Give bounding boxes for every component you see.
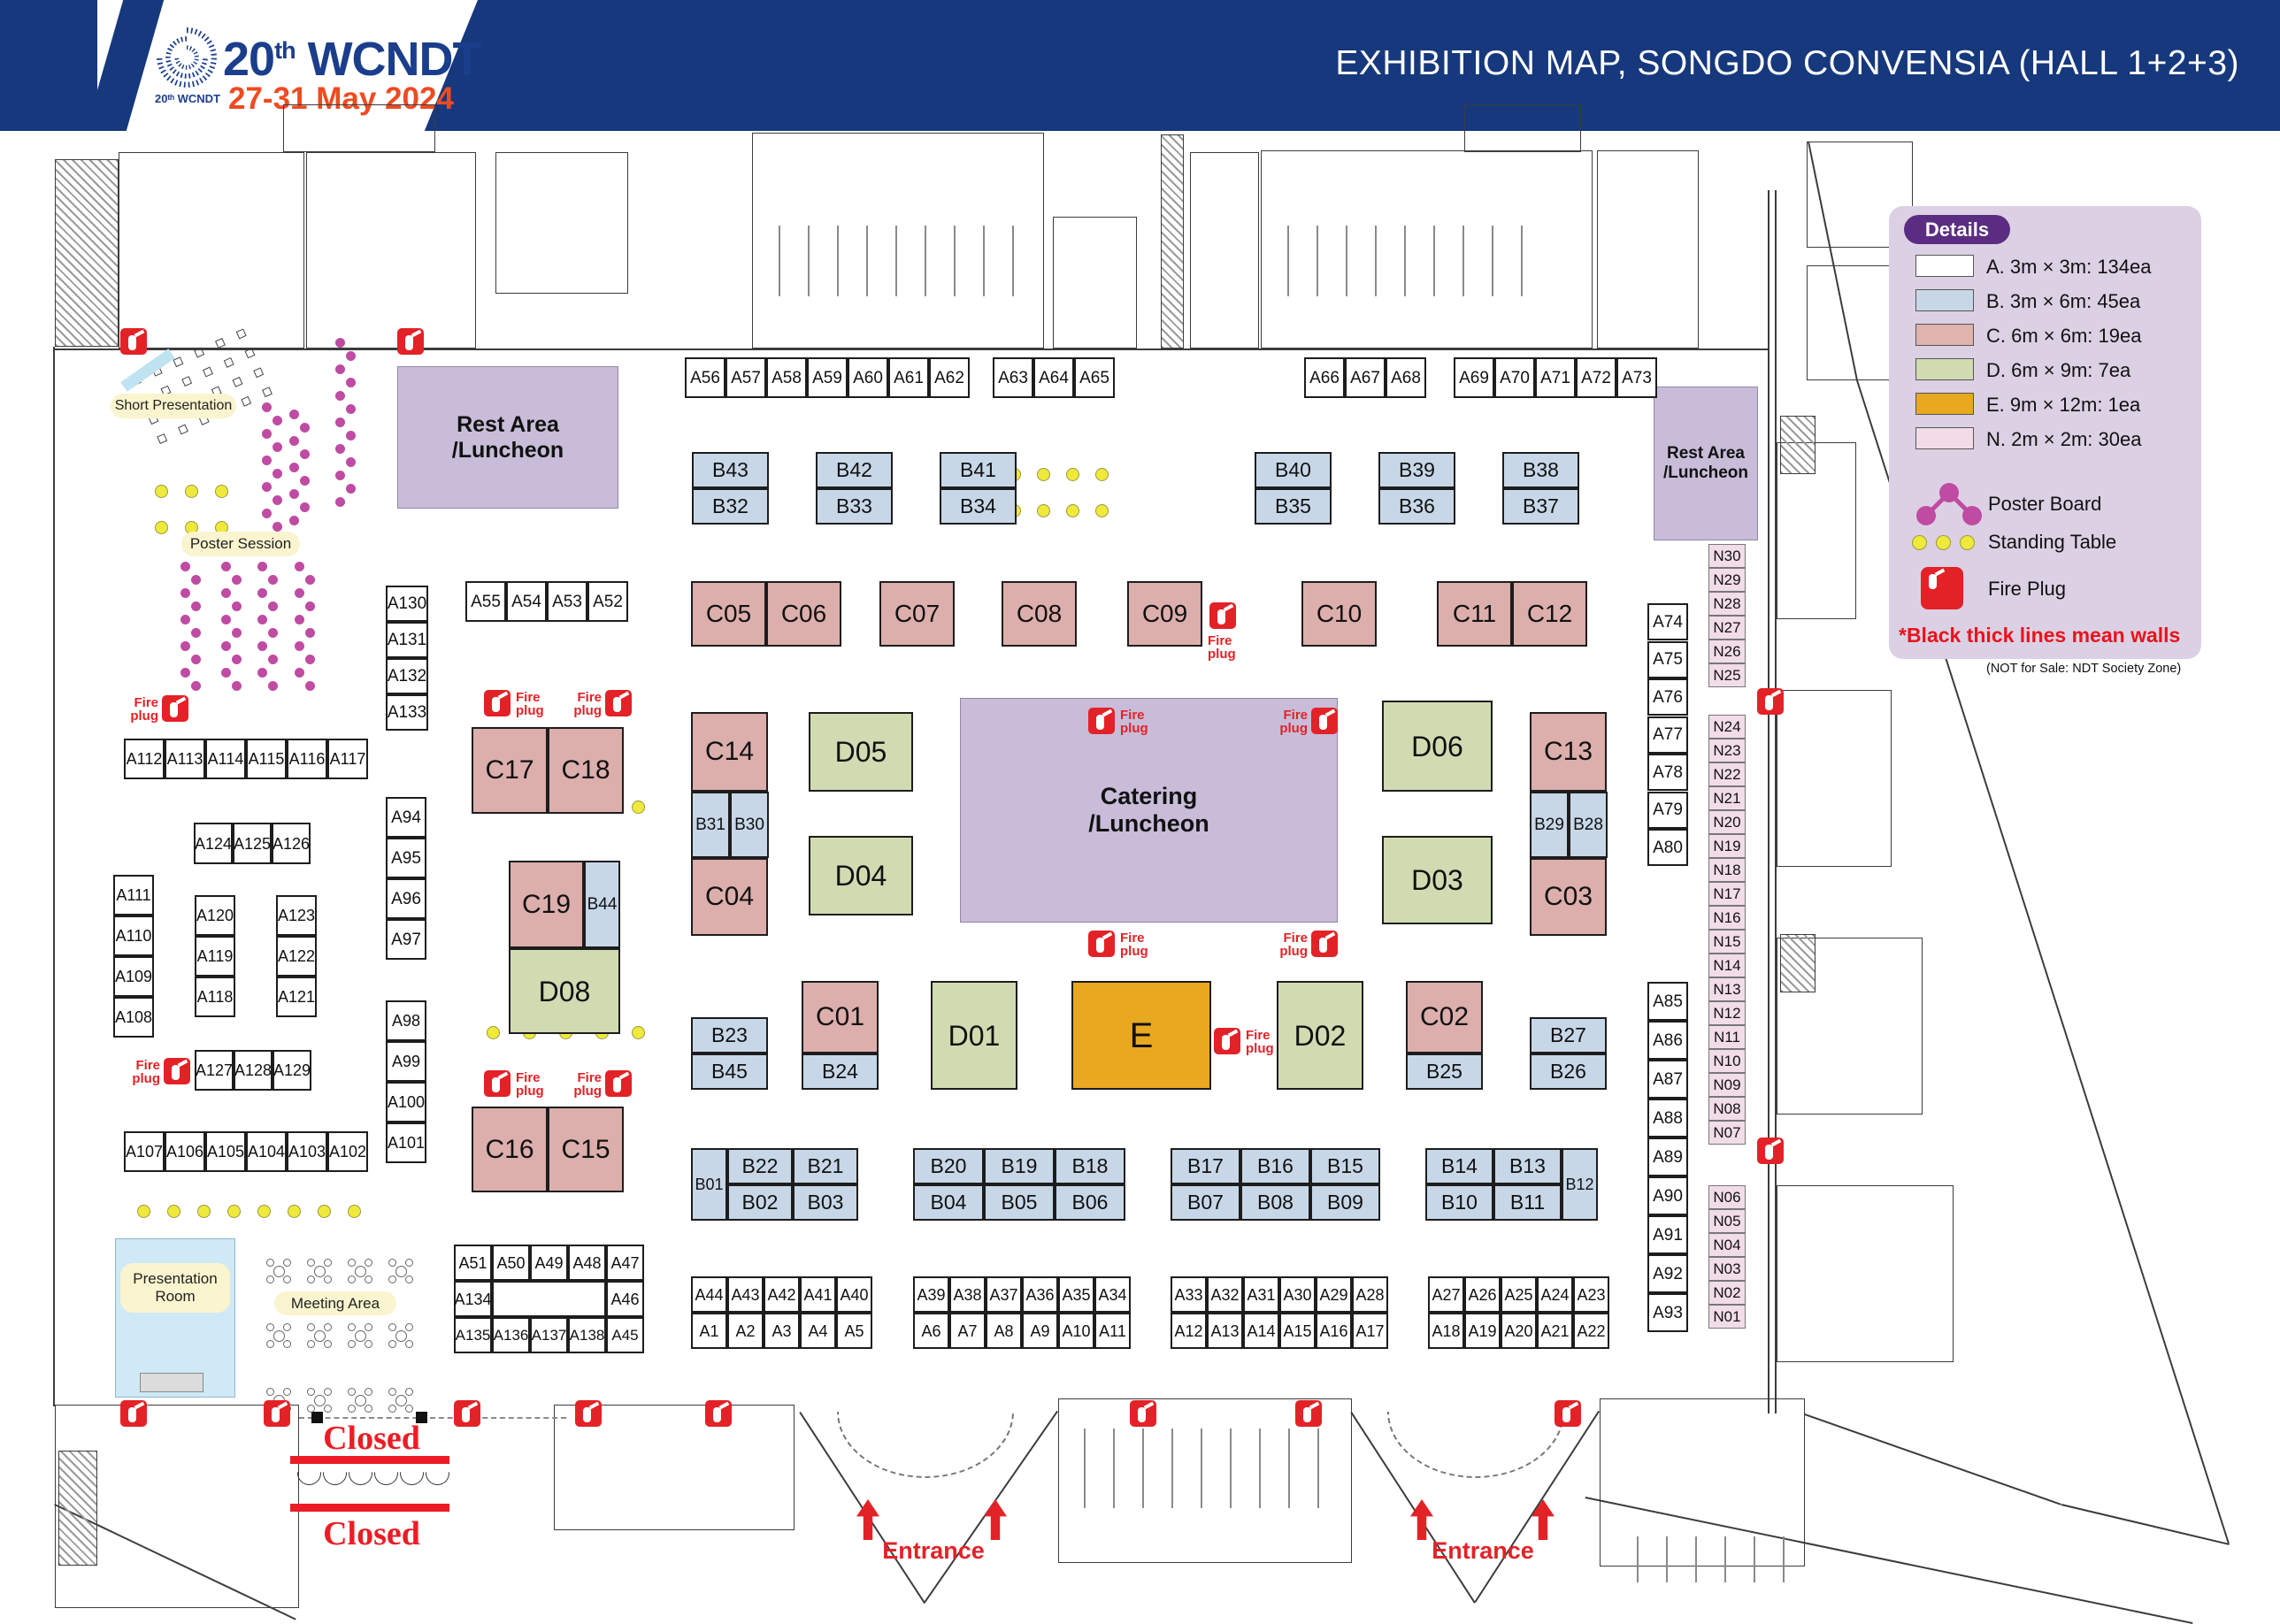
booth-A19: A19 [1464,1313,1501,1349]
booth-C05: C05 [691,581,766,647]
chair-icon [283,1340,291,1348]
booth-B16: B16 [1240,1148,1310,1184]
legend-fire-plug-label: Fire Plug [1988,578,2066,601]
chair-icon [178,425,188,435]
booth-N17: N17 [1708,882,1746,906]
booth-A4: A4 [800,1313,836,1349]
poster-board-icon [335,364,345,374]
booth-A73: A73 [1616,357,1657,398]
poster-board-icon [232,628,242,638]
booth-A45: A45 [606,1317,644,1353]
standing-table-icon [1095,504,1109,517]
booth-B11: B11 [1493,1184,1562,1221]
wall-room [1777,690,1892,867]
legend-label-E: E. 9m × 12m: 1ea [1986,394,2140,417]
poster-board-icon [346,457,356,467]
booth-C09: C09 [1127,581,1202,647]
chair-icon [365,1340,372,1348]
booth-A1: A1 [691,1313,727,1349]
booth-A42: A42 [764,1276,800,1313]
booth-D02: D02 [1277,981,1363,1090]
poster-board-icon [180,641,190,651]
chair-icon [307,1275,315,1283]
legend-title: Details [1904,215,2010,244]
chair-icon [388,1323,396,1331]
booth-N24: N24 [1708,715,1746,739]
booth-B40: B40 [1255,452,1332,488]
fire-plug-icon [1088,931,1115,957]
poster-board-icon [289,463,299,472]
booth-D01: D01 [931,981,1017,1090]
booth-A56: A56 [685,357,725,398]
stairs-hatch [1161,134,1184,349]
booth-C10: C10 [1301,581,1377,647]
booth-N10: N10 [1708,1049,1746,1073]
standing-table-icon [197,1205,211,1218]
chair-icon [405,1405,413,1413]
poster-board-icon [300,423,310,433]
wall-corridor [1768,190,1777,1413]
booth-B28: B28 [1569,792,1608,858]
booth-N19: N19 [1708,834,1746,858]
standing-table-icon [1066,468,1079,481]
booth-N03: N03 [1708,1257,1746,1281]
chair-icon [262,387,273,397]
poster-board-icon [305,655,315,664]
meeting-table-icon [346,1386,374,1414]
standing-table-icon [288,1205,301,1218]
fire-plug-icon [1757,688,1784,715]
booth-B02: B02 [727,1184,793,1221]
chair-icon [224,357,234,368]
booth-A5: A5 [836,1313,872,1349]
standing-table-icon [348,1205,361,1218]
wall-room [1464,104,1581,152]
chair-icon [388,1405,396,1413]
booth-A108: A108 [113,997,154,1038]
meeting-table-icon [305,1386,334,1414]
standing-table-icon [137,1205,150,1218]
booth-A138: A138 [568,1317,606,1353]
legend-swatch-A [1915,255,1974,277]
booth-A47: A47 [606,1245,644,1281]
poster-board-icon [232,575,242,585]
poster-board-icon [289,436,299,446]
fire-plug-icon [1757,1138,1784,1164]
chair-icon [365,1405,372,1413]
fire-plug-icon [605,690,632,716]
booth-A70: A70 [1494,357,1535,398]
booth-A23: A23 [1573,1276,1609,1313]
chair-icon [324,1340,332,1348]
area-rest-area-luncheon-right: Rest Area /Luncheon [1654,387,1758,540]
legend-label-B: B. 3m × 6m: 45ea [1986,290,2140,313]
poster-board-icon [346,431,356,440]
chair-icon [365,1323,372,1331]
booth-A89: A89 [1647,1138,1688,1176]
booth-A129: A129 [273,1050,311,1091]
chair-icon [348,1259,356,1267]
legend-label-C: C. 6m × 6m: 19ea [1986,325,2141,348]
booth-A107: A107 [124,1131,165,1172]
legend-poster-board-label: Poster Board [1988,493,2101,516]
booth-B08: B08 [1240,1184,1310,1221]
booth-B29: B29 [1530,792,1569,858]
area-rest-area-luncheon-left: Rest Area /Luncheon [397,366,618,509]
booth-A104: A104 [246,1131,287,1172]
poster-board-icon [335,391,345,401]
booth-C04: C04 [691,858,768,936]
booth-A130: A130 [386,586,428,622]
poster-board-icon [180,615,190,624]
booth-A12: A12 [1171,1313,1207,1349]
booth-A67: A67 [1345,357,1386,398]
legend-label-N: N. 2m × 2m: 30ea [1986,428,2141,451]
chair-icon [388,1259,396,1267]
booth-B18: B18 [1055,1148,1125,1184]
chair-icon [365,1388,372,1396]
chair-icon [253,367,264,378]
fire-plug-icon [705,1400,732,1427]
wall-room [1807,265,1895,380]
booth-A119: A119 [195,936,235,977]
booth-A123: A123 [276,895,317,936]
fire-plug-icon [1311,931,1338,957]
booth-empty [492,1281,606,1317]
booth-A2: A2 [727,1313,764,1349]
poster-board-icon [191,628,201,638]
wall-room [1777,1185,1954,1362]
booth-B23: B23 [691,1017,768,1053]
poster-board-icon [257,615,267,624]
fire-plug-icon [1555,1400,1581,1427]
booth-C18: C18 [548,727,624,814]
door-arc [349,1461,372,1485]
booth-A112: A112 [124,739,165,779]
booth-A10: A10 [1058,1313,1094,1349]
chair-icon [395,1330,407,1342]
poster-board-icon [191,681,201,691]
chair-icon [266,1340,274,1348]
booth-A3: A3 [764,1313,800,1349]
wall-line [55,349,1768,350]
booth-D08: D08 [509,948,620,1034]
wall-room [283,104,435,152]
label-presentation-room: Presentation Room [120,1263,230,1313]
standing-table-icon [155,521,168,534]
booth-A128: A128 [234,1050,273,1091]
fire-plug-label: Fire plug [564,691,602,717]
booth-B06: B06 [1055,1184,1125,1221]
chair-icon [355,1266,366,1277]
standing-table-icon [318,1205,331,1218]
legend-standing-table-label: Standing Table [1988,531,2116,554]
poster-board-icon [262,456,272,465]
chair-icon [307,1405,315,1413]
booth-A74: A74 [1647,603,1688,640]
booth-A26: A26 [1464,1276,1501,1313]
meeting-table-icon [387,1321,415,1350]
booth-B39: B39 [1378,452,1455,488]
booth-A134: A134 [454,1281,492,1317]
fire-plug-icon [1209,602,1236,629]
poster-board-icon [1914,482,1984,526]
booth-A13: A13 [1207,1313,1243,1349]
poster-board-icon [257,562,267,571]
booth-A31: A31 [1243,1276,1279,1313]
poster-board-icon [262,402,272,412]
chair-icon [181,376,192,387]
chair-icon [365,1259,372,1267]
booth-A21: A21 [1537,1313,1573,1349]
booth-A49: A49 [530,1245,568,1281]
stairs-hatch [58,1451,97,1566]
booth-A109: A109 [113,956,154,997]
fire-plug-icon [397,328,424,355]
poster-board-icon [295,562,304,571]
poster-board-icon [262,482,272,492]
booth-B33: B33 [816,488,893,525]
standing-table-icon [1037,504,1050,517]
chair-icon [203,367,213,378]
booth-C12: C12 [1512,581,1587,647]
booth-B15: B15 [1310,1148,1380,1184]
booth-A96: A96 [386,878,426,919]
poster-board-icon [273,442,282,452]
booth-A41: A41 [800,1276,836,1313]
standing-table-icon [1037,468,1050,481]
booth-N08: N08 [1708,1097,1746,1121]
booth-A88: A88 [1647,1099,1688,1138]
booth-B27: B27 [1530,1017,1607,1053]
chair-icon [348,1388,356,1396]
meeting-table-icon [265,1321,293,1350]
booth-D03: D03 [1382,836,1493,924]
booth-N30: N30 [1708,544,1746,568]
fire-plug-icon [1921,567,1963,609]
chair-icon [405,1323,413,1331]
chair-icon [266,1388,274,1396]
wall-room [119,152,304,349]
wall-line [53,347,55,1406]
stairs-hatch [1780,934,1816,992]
standing-table-icon [185,485,198,498]
booth-A132: A132 [386,658,428,694]
booth-A14: A14 [1243,1313,1279,1349]
poster-board-icon [273,522,282,532]
poster-board-icon [335,338,345,348]
booth-C19: C19 [509,861,584,948]
booth-N02: N02 [1708,1281,1746,1305]
booth-N05: N05 [1708,1209,1746,1233]
booth-C11: C11 [1437,581,1512,647]
fire-plug-label: Fire plug [121,696,158,723]
standing-table-icon [1936,535,1951,550]
booth-A99: A99 [386,1041,426,1082]
poster-board-icon [335,497,345,507]
booth-A106: A106 [165,1131,205,1172]
booth-A114: A114 [205,739,246,779]
chair-icon [307,1340,315,1348]
booth-B04: B04 [913,1184,984,1221]
booth-B37: B37 [1502,488,1579,525]
fire-plug-icon [1311,708,1338,734]
booth-A6: A6 [913,1313,949,1349]
chair-icon [348,1275,356,1283]
poster-board-icon [305,681,315,691]
poster-board-icon [346,351,356,361]
chair-icon [388,1340,396,1348]
poster-board-icon [295,641,304,651]
standing-table-icon [1912,535,1927,550]
booth-B03: B03 [793,1184,858,1221]
door-arc [374,1461,398,1485]
booth-A79: A79 [1647,792,1688,829]
chair-icon [283,1323,291,1331]
booth-A30: A30 [1279,1276,1316,1313]
booth-C03: C03 [1530,858,1607,936]
booth-B13: B13 [1493,1148,1562,1184]
door-arc [323,1461,347,1485]
chair-icon [324,1388,332,1396]
wall-room [1053,217,1137,349]
booth-A111: A111 [113,875,154,915]
booth-N16: N16 [1708,906,1746,930]
meeting-table-icon [387,1386,415,1414]
poster-board-icon [262,429,272,439]
booth-A69: A69 [1454,357,1494,398]
chair-icon [307,1388,315,1396]
fixture-ticks [779,226,1017,296]
booth-A72: A72 [1576,357,1616,398]
booth-N26: N26 [1708,640,1746,663]
poster-board-icon [191,655,201,664]
booth-B31: B31 [691,792,730,858]
fire-plug-icon [484,1070,511,1097]
fire-plug-icon [605,1070,632,1097]
booth-B05: B05 [984,1184,1055,1221]
meeting-table-icon [265,1257,293,1285]
booth-A131: A131 [386,622,428,658]
booth-A33: A33 [1171,1276,1207,1313]
booth-A18: A18 [1428,1313,1464,1349]
poster-board-icon [268,681,278,691]
booth-B22: B22 [727,1148,793,1184]
chair-icon [395,1266,407,1277]
booth-A105: A105 [205,1131,246,1172]
fixture-ticks [1287,226,1544,296]
booth-B41: B41 [940,452,1017,488]
booth-C06: C06 [766,581,841,647]
booth-A95: A95 [386,838,426,878]
door-arc [400,1461,424,1485]
poster-board-icon [335,471,345,480]
booth-C16: C16 [472,1107,548,1192]
booth-A62: A62 [929,357,970,398]
fire-plug-label: Fire plug [516,691,544,717]
poster-board-icon [180,668,190,678]
poster-board-icon [180,562,190,571]
exhibition-map-page: 20ᵗʰ WCNDT 20th WCNDT 27-31 May 2024 EXH… [0,0,2280,1624]
poster-board-icon [346,484,356,494]
fire-plug-icon [1295,1400,1322,1427]
wall-room [1597,150,1699,349]
booth-N23: N23 [1708,739,1746,762]
booth-A103: A103 [287,1131,327,1172]
booth-A55: A55 [465,581,506,622]
poster-board-icon [221,588,231,598]
poster-board-icon [289,516,299,525]
booth-A98: A98 [386,1000,426,1041]
booth-A63: A63 [993,357,1033,398]
booth-C14: C14 [691,712,768,792]
fire-plug-label: Fire plug [1120,931,1148,958]
booth-A52: A52 [587,581,628,622]
poster-board-icon [273,469,282,479]
booth-B35: B35 [1255,488,1332,525]
booth-A59: A59 [807,357,848,398]
booth-N04: N04 [1708,1233,1746,1257]
chair-icon [324,1323,332,1331]
booth-A15: A15 [1279,1313,1316,1349]
entrance-label: Entrance [880,1537,986,1565]
meeting-table-icon [387,1257,415,1285]
booth-B45: B45 [691,1053,768,1090]
booth-A110: A110 [113,915,154,956]
door-arc [297,1461,321,1485]
legend-n-note: (NOT for Sale: NDT Society Zone) [1986,662,2181,676]
chair-icon [388,1388,396,1396]
booth-B09: B09 [1310,1184,1380,1221]
chair-icon [283,1388,291,1396]
chair-icon [405,1275,413,1283]
booth-A58: A58 [766,357,807,398]
legend-panel: Details A. 3m × 3m: 134eaB. 3m × 6m: 45e… [1889,206,2201,659]
fire-plug-label: Fire plug [123,1059,160,1085]
booth-A53: A53 [547,581,587,622]
poster-board-icon [305,628,315,638]
booth-A40: A40 [836,1276,872,1313]
chair-icon [273,1266,285,1277]
booth-B12: B12 [1562,1148,1598,1221]
booth-A85: A85 [1647,982,1688,1021]
booth-D05: D05 [809,712,913,792]
poster-board-icon [268,655,278,664]
entrance-arc [837,1345,1014,1478]
booth-C17: C17 [472,727,548,814]
booth-A46: A46 [606,1281,644,1317]
booth-B30: B30 [730,792,769,858]
booth-A35: A35 [1058,1276,1094,1313]
booth-N20: N20 [1708,810,1746,834]
standing-table-icon [167,1205,180,1218]
chair-icon [348,1340,356,1348]
booth-B19: B19 [984,1148,1055,1184]
booth-A102: A102 [327,1131,368,1172]
logo-title-sup: th [274,37,295,64]
booth-A17: A17 [1352,1313,1388,1349]
poster-board-icon [221,641,231,651]
page-title: EXHIBITION MAP, SONGDO CONVENSIA (HALL 1… [1335,44,2239,83]
fixture-ticks [1637,1536,1787,1582]
booth-N11: N11 [1708,1025,1746,1049]
booth-A133: A133 [386,694,428,731]
chair-icon [314,1266,326,1277]
booth-B20: B20 [913,1148,984,1184]
booth-A118: A118 [195,977,235,1017]
stairs-hatch [1780,416,1816,474]
booth-C13: C13 [1530,712,1607,792]
